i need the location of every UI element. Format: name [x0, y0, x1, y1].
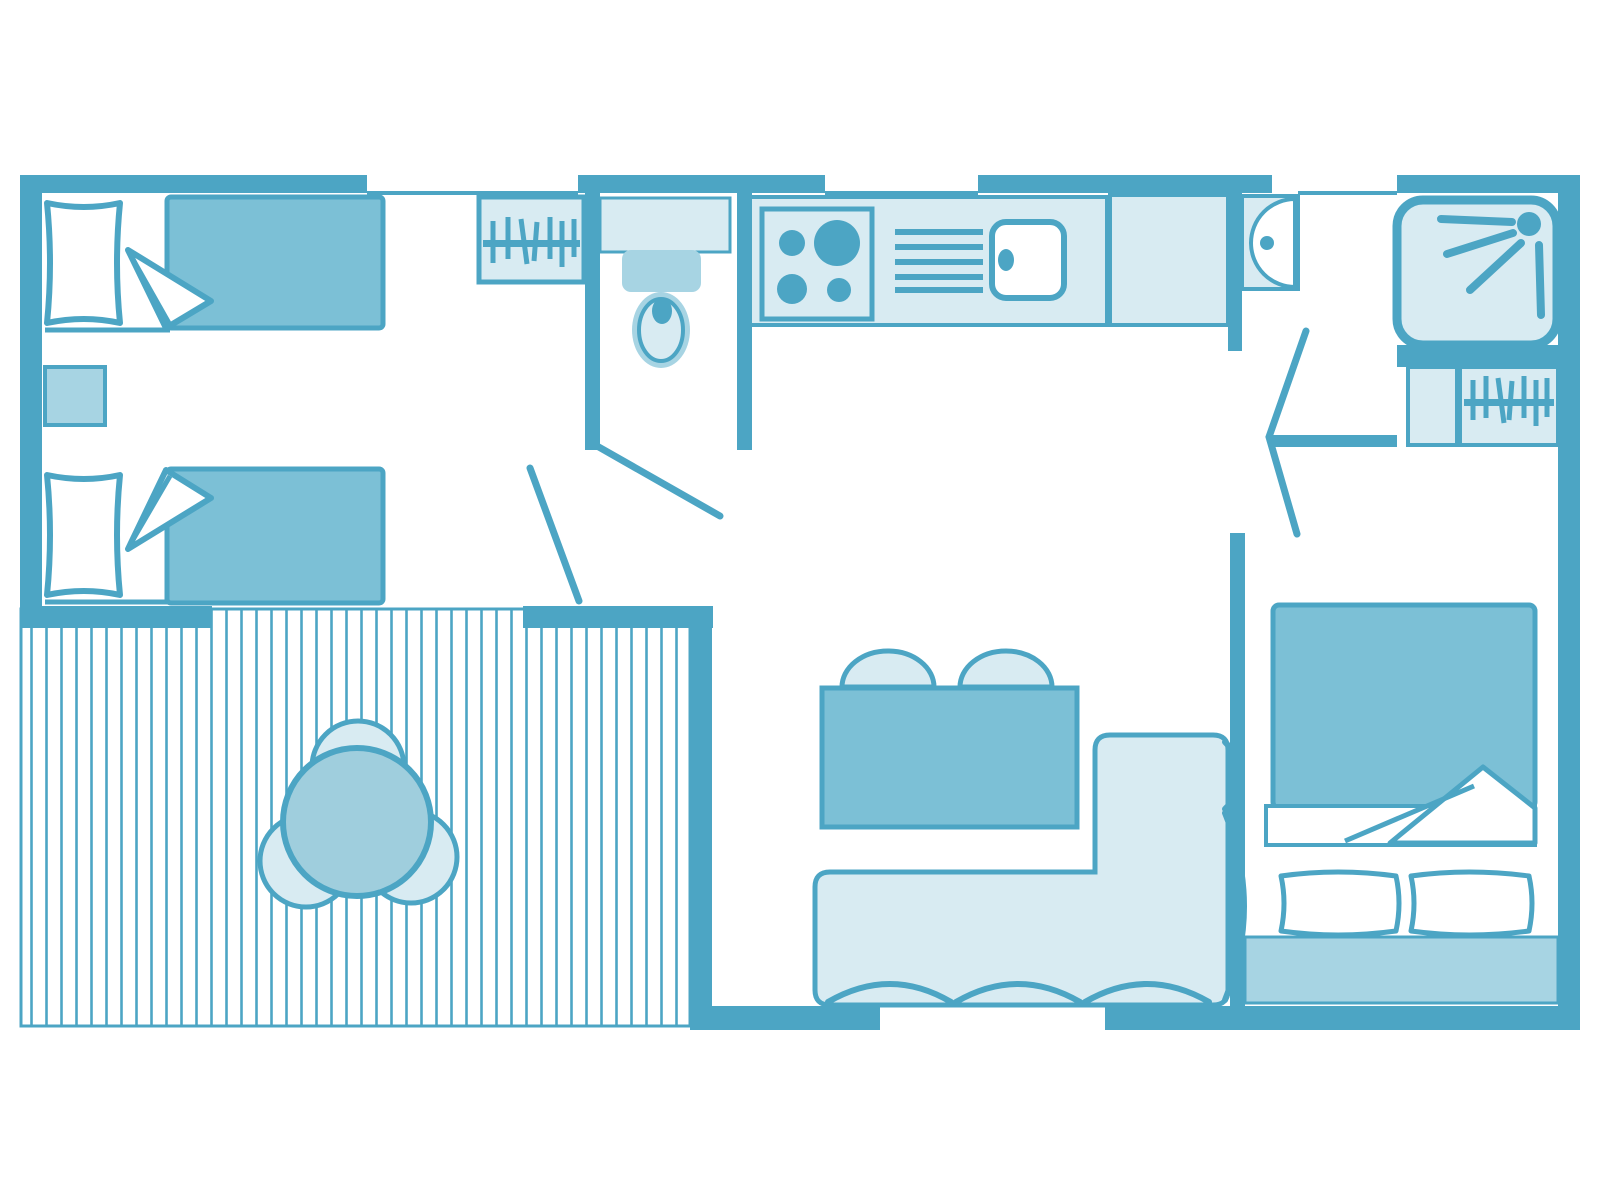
wall-master-top — [1272, 435, 1397, 447]
toilet-cistern — [622, 250, 701, 292]
window-line — [367, 191, 578, 195]
headboard — [1245, 937, 1558, 1003]
nightstand — [45, 367, 105, 425]
hanger-rail-icon — [483, 240, 580, 247]
bedroom-door-swing — [530, 468, 579, 601]
window-line — [825, 191, 978, 195]
wardrobe — [479, 197, 584, 282]
toilet-drain — [652, 298, 672, 324]
shower-room — [1397, 200, 1558, 445]
master-bedroom — [1245, 605, 1558, 1003]
floor-plan-page — [0, 0, 1600, 1200]
wall-right — [1558, 175, 1580, 1030]
pillow — [1411, 872, 1532, 935]
pillow — [47, 475, 120, 595]
single-bed-bottom — [45, 469, 383, 603]
wall-left — [20, 175, 42, 628]
toilet-tank — [600, 198, 730, 252]
floor-plan-canvas — [0, 0, 1600, 1200]
twin-bedroom — [45, 197, 584, 603]
entry — [1242, 196, 1306, 534]
wall-top-4 — [1397, 175, 1563, 193]
closet-shelf — [1408, 367, 1457, 445]
dining-chair — [842, 651, 934, 687]
wc-room — [600, 198, 730, 368]
sink-drain — [998, 249, 1014, 271]
dining-table — [822, 688, 1077, 827]
window-line — [1298, 191, 1397, 195]
pillow — [47, 203, 120, 323]
wall-shower-bottom — [1397, 345, 1563, 367]
wall-top-1 — [20, 175, 367, 193]
hob — [762, 209, 872, 319]
wall-bottom-1 — [690, 1006, 880, 1030]
dining-chair — [960, 651, 1052, 687]
wall-entry — [1228, 192, 1242, 351]
wall-hall-bottom — [523, 606, 713, 628]
door-swings — [530, 446, 720, 601]
wall-living-west — [690, 609, 712, 1030]
wall-bottom-2 — [1105, 1006, 1580, 1030]
wall-top-2 — [578, 175, 825, 193]
living-room — [815, 651, 1244, 1005]
wall-top-3 — [978, 175, 1272, 193]
single-bed-top — [45, 197, 383, 330]
bifold-door-swing — [1269, 331, 1306, 534]
wc-door-swing — [597, 446, 720, 516]
wall-bedroom-bottom — [20, 606, 212, 628]
pillow — [1281, 872, 1399, 935]
washbasin-drain — [1260, 236, 1274, 250]
wall-wc-left — [585, 193, 600, 450]
round-table — [283, 748, 431, 896]
wall-master-left — [1230, 533, 1245, 1006]
kitchen — [750, 195, 1228, 325]
wall-wc-right — [737, 193, 752, 450]
terrace — [21, 609, 690, 1026]
hanger-closet — [1460, 367, 1558, 445]
kitchen-counter-right — [1110, 195, 1228, 325]
